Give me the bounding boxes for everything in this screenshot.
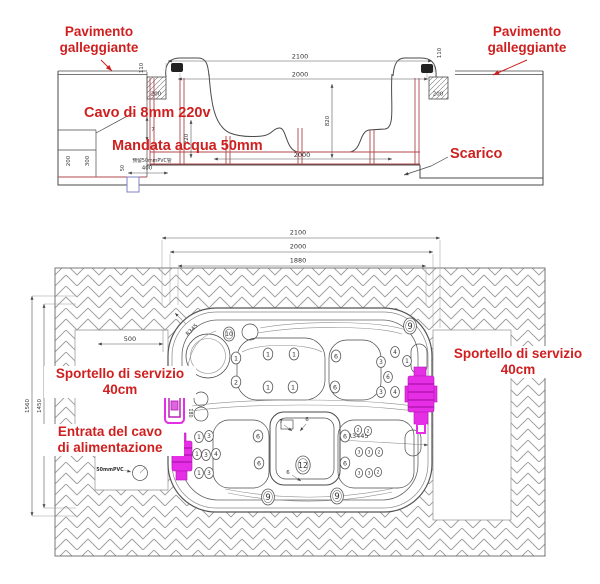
dim-wall-off2: 300 [85, 155, 91, 166]
label-mandata: Mandata acqua 50mm [112, 138, 263, 155]
jet-marker: 3 [205, 468, 214, 479]
svg-text:1: 1 [266, 351, 270, 358]
svg-text:1: 1 [234, 355, 238, 362]
svg-text:6: 6 [334, 353, 338, 360]
svg-text:3: 3 [368, 471, 371, 477]
label-sportello-right: Sportello di servizio 40cm [436, 346, 600, 378]
svg-text:6: 6 [256, 433, 260, 440]
svg-text:1: 1 [195, 452, 199, 458]
svg-text:3: 3 [204, 453, 208, 459]
svg-text:9: 9 [407, 321, 412, 331]
svg-text:1: 1 [197, 471, 201, 477]
jet-marker: 1 [403, 356, 412, 367]
svg-text:3: 3 [379, 360, 383, 366]
svg-text:1: 1 [405, 359, 409, 365]
label-pavimento-left: Pavimento galleggiante [38, 24, 160, 56]
label-entrata: Entrata del cavo di alimentazione [36, 424, 184, 456]
svg-text:2: 2 [377, 470, 380, 476]
jet-marker: 2 [354, 426, 361, 435]
jet-marker: 1 [195, 468, 204, 479]
jet-marker: 1 [263, 381, 273, 393]
label-scarico: Scarico [450, 146, 502, 163]
dim-plan-w3: 1880 [290, 257, 307, 265]
jet-marker: 2 [364, 427, 371, 436]
label-sportello-left: Sportello di servizio 40cm [44, 366, 196, 398]
dim-block-left: 200 [151, 92, 162, 98]
jet-marker: 3 [365, 448, 372, 457]
svg-text:6: 6 [386, 375, 390, 381]
rim-clip-left [171, 63, 183, 72]
svg-text:3: 3 [379, 390, 383, 396]
svg-text:9: 9 [265, 492, 270, 502]
svg-text:1: 1 [197, 435, 201, 441]
svg-text:12: 12 [298, 461, 308, 470]
svg-text:6: 6 [333, 384, 337, 391]
pvc-conduit [127, 177, 139, 192]
pvc-note: 预留50mmPVC管 [132, 157, 172, 164]
dim-rim-width: 2000 [292, 71, 309, 79]
svg-text:9: 9 [334, 491, 339, 501]
jet-marker: 2 [231, 376, 241, 388]
jet-marker: 6 [340, 457, 350, 469]
jet-marker: 6 [384, 372, 393, 383]
svg-text:2: 2 [357, 428, 360, 434]
jet-marker: 2 [375, 448, 382, 457]
jet-marker: 12 [296, 456, 310, 474]
svg-text:6: 6 [257, 460, 261, 467]
jet-marker: 3 [377, 387, 386, 398]
jet-marker: 3 [377, 357, 386, 368]
label-pavimento-right: Pavimento galleggiante [466, 24, 588, 56]
svg-text:10: 10 [225, 331, 233, 338]
svg-text:4: 4 [393, 390, 397, 396]
spa-installation-diagram: 2100 2000 820 220 2000 110 110 200 200 2… [0, 0, 600, 584]
dim-total-width: 2100 [292, 53, 309, 61]
jet-marker: 3 [355, 448, 362, 457]
technical-drawing: 2100 2000 820 220 2000 110 110 200 200 2… [0, 0, 600, 584]
jet-marker: 3 [205, 431, 214, 442]
svg-text:2: 2 [378, 450, 381, 456]
svg-text:6: 6 [343, 460, 347, 467]
svg-text:6: 6 [343, 433, 347, 440]
jet-marker: 9 [404, 318, 417, 334]
jet-marker: 9 [331, 488, 344, 504]
dim-clear-left: 500 [124, 335, 136, 343]
svg-text:3: 3 [207, 434, 211, 440]
jet-marker: 1 [263, 348, 273, 360]
pvc-label: 50mmPVC [96, 467, 124, 473]
footwell-label-6a: 6 [305, 417, 309, 423]
dim-plan-h1: 1560 [25, 399, 31, 413]
footwell-label-6b: 6 [286, 470, 290, 476]
jet-marker: 3 [355, 469, 362, 478]
dim-rim-h-right: 110 [437, 47, 443, 58]
dim-seven: 7 [151, 127, 155, 133]
dim-plan-w2: 2000 [290, 243, 307, 251]
svg-text:1: 1 [292, 351, 296, 358]
svg-text:4: 4 [214, 452, 218, 458]
jet-marker: 4 [391, 347, 400, 358]
svg-text:1: 1 [266, 384, 270, 391]
svg-text:3: 3 [207, 471, 211, 477]
jet-marker: 1 [193, 449, 202, 460]
jet-marker: 1 [288, 381, 298, 393]
svg-text:3: 3 [368, 450, 371, 456]
dim-plan-h2: 1450 [37, 399, 43, 413]
svg-text:3: 3 [358, 450, 361, 456]
svg-text:2: 2 [367, 429, 370, 435]
svg-text:4: 4 [393, 350, 397, 356]
footwell-label-7: 7 [279, 419, 283, 425]
rim-clip-right [421, 64, 433, 73]
jet-marker: 3 [202, 450, 211, 461]
jet-marker: 6 [253, 430, 263, 442]
jet-marker: 6 [331, 350, 341, 362]
jet-marker: 4 [212, 449, 221, 460]
jet-marker: 6 [254, 457, 264, 469]
dim-pvc-offset: 400 [142, 166, 153, 172]
jet-marker: 1 [231, 352, 241, 364]
jet-marker: 1 [195, 432, 204, 443]
dim-plan-w1: 2100 [290, 229, 307, 237]
door-note: 180 [187, 408, 193, 417]
dim-block-right: 200 [433, 92, 444, 98]
svg-text:3: 3 [358, 471, 361, 477]
jet-marker: 6 [340, 430, 350, 442]
jet-marker: 9 [262, 489, 275, 505]
svg-text:1: 1 [291, 384, 295, 391]
dim-wall-off1: 200 [66, 155, 72, 166]
jet-marker: 6 [330, 381, 340, 393]
jet-marker: 10 [223, 327, 234, 341]
dim-rim-h-left: 110 [139, 62, 145, 73]
jet-marker: 2 [374, 468, 381, 477]
svg-text:2: 2 [234, 379, 238, 386]
jet-marker: 4 [391, 387, 400, 398]
dim-pvc-small: 50 [120, 165, 126, 171]
dim-depth: 820 [325, 115, 331, 126]
label-cavo: Cavo di 8mm 220v [84, 105, 211, 122]
jet-marker: 1 [289, 348, 299, 360]
dim-base-width: 2000 [294, 151, 311, 159]
jet-marker: 3 [365, 469, 372, 478]
